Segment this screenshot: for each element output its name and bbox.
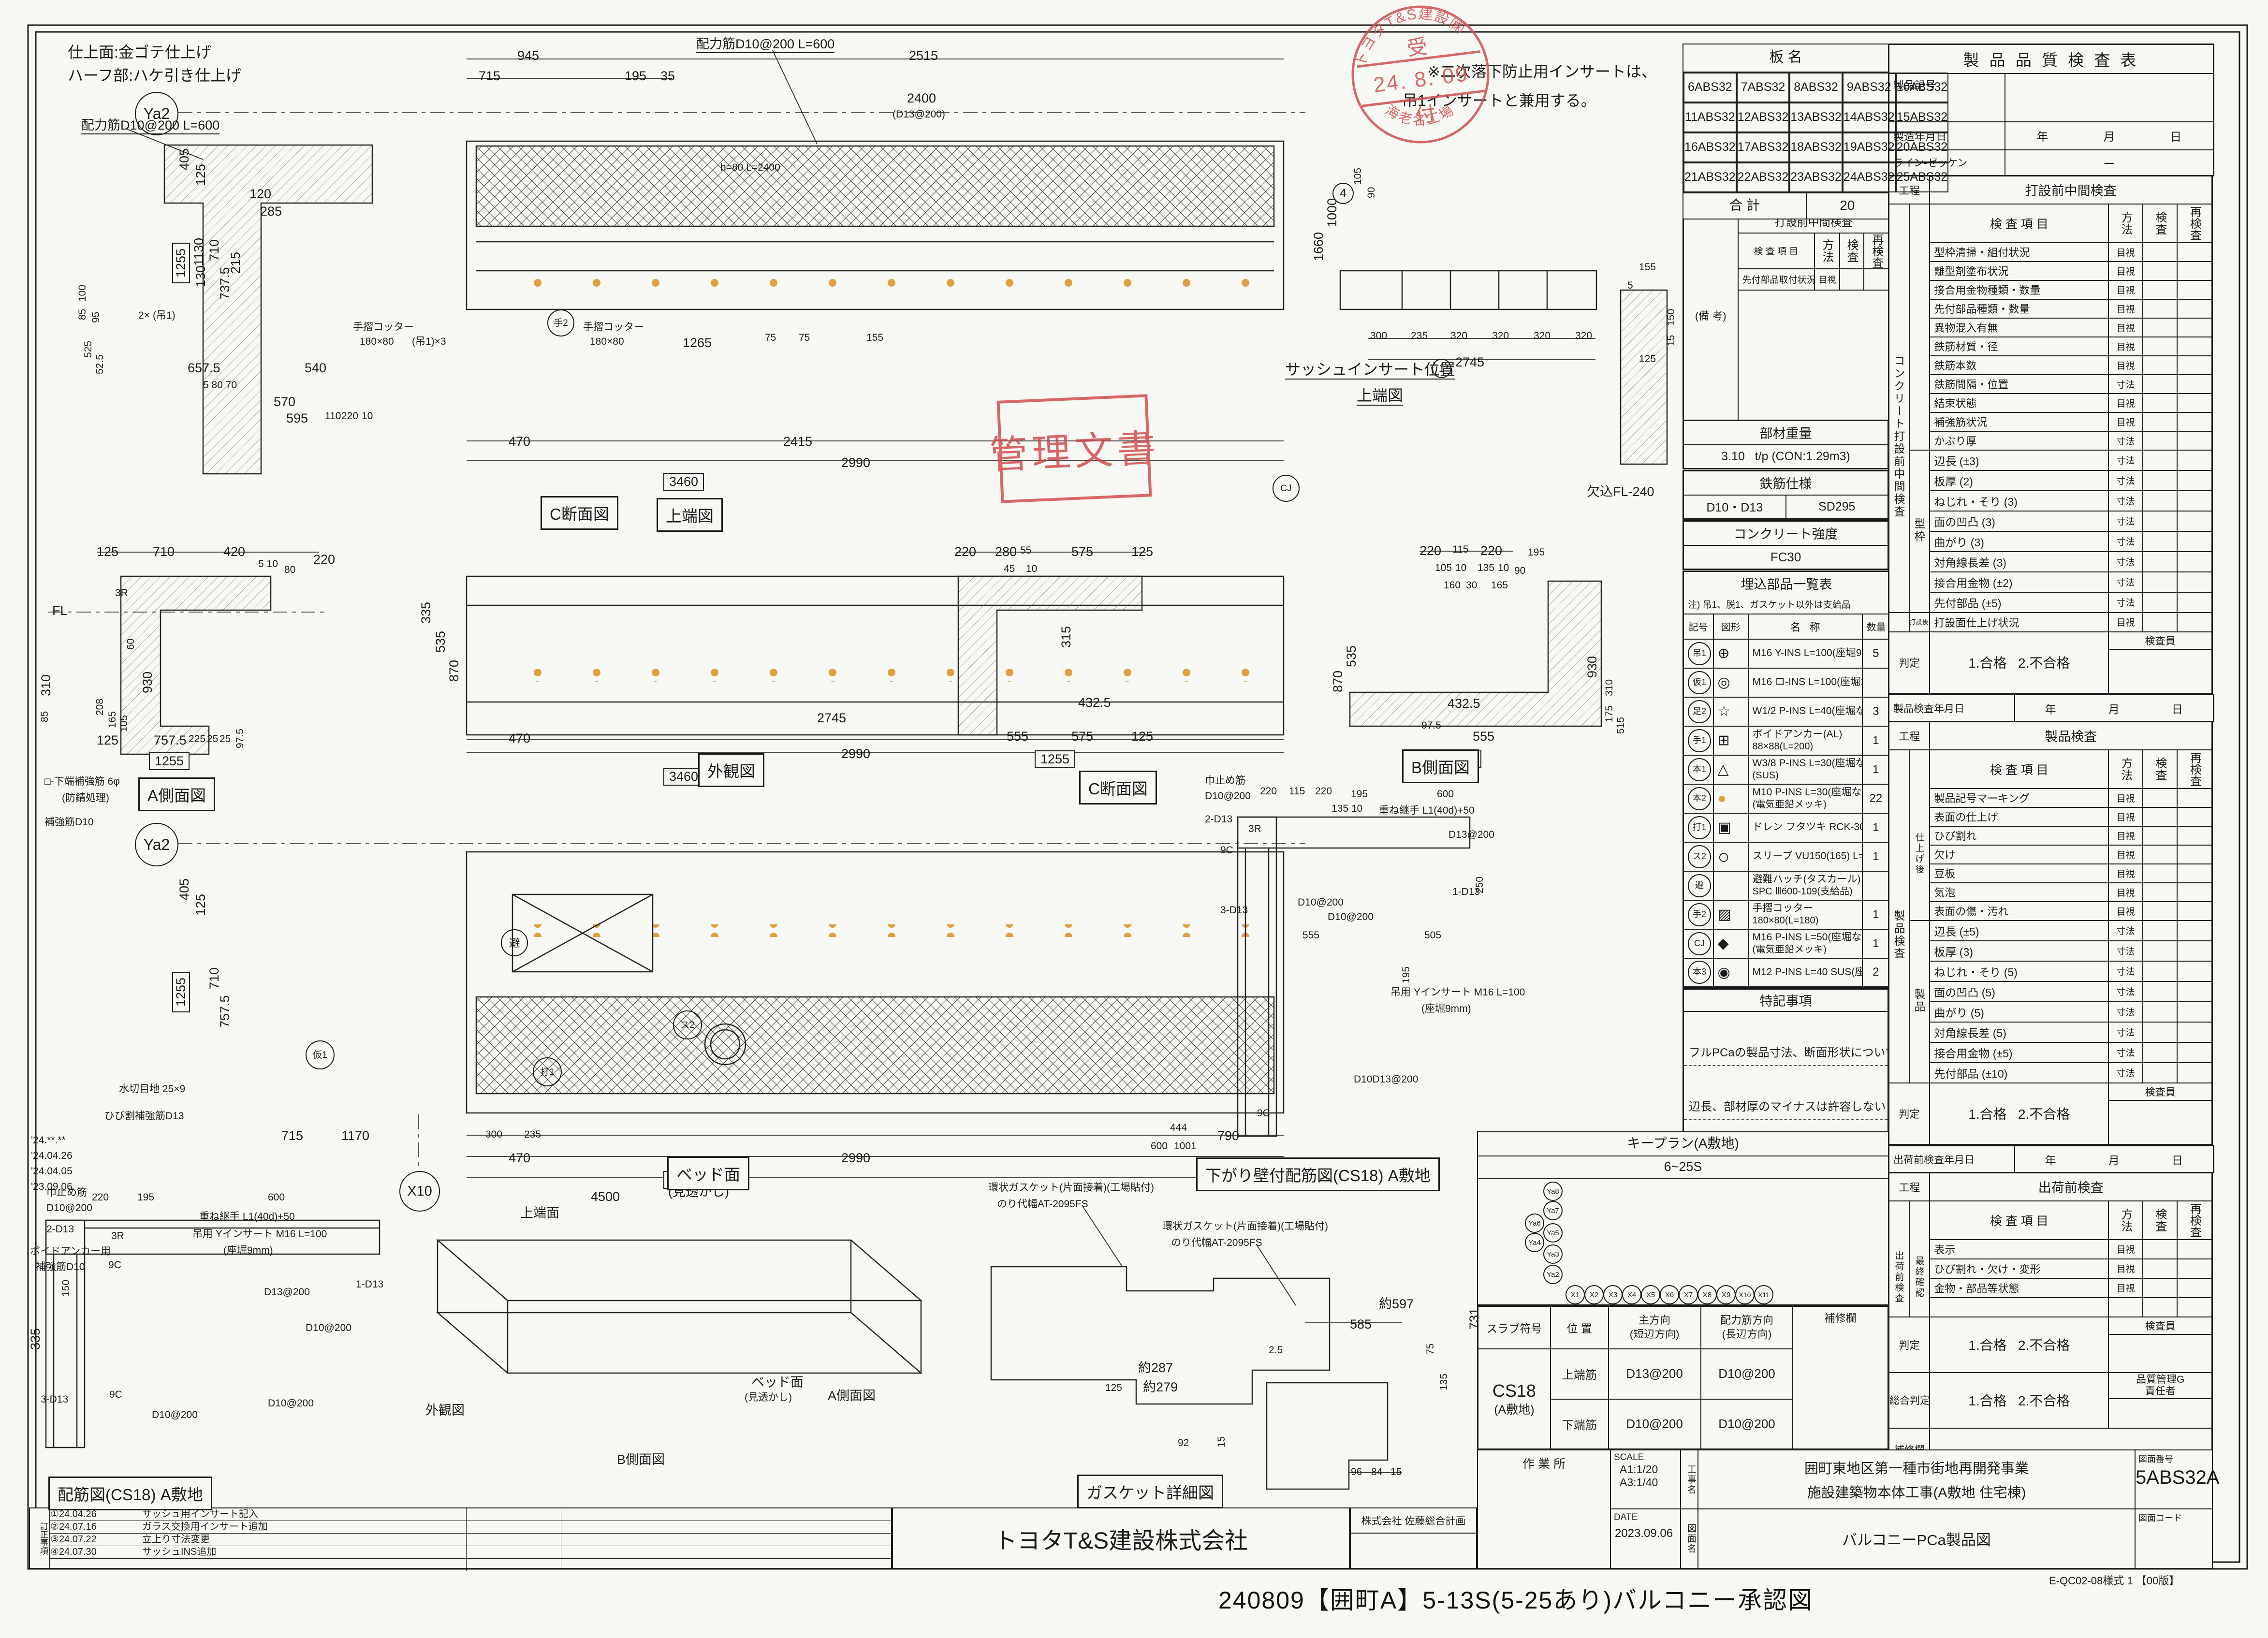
dim-text: 155 xyxy=(1639,262,1656,272)
dim-text: 220 xyxy=(954,545,976,558)
part-symbol: CJ xyxy=(1683,929,1713,958)
h-sym: 記号 xyxy=(1683,614,1713,639)
dim-text: 5 10 xyxy=(258,559,278,569)
dim-text: 555 xyxy=(1473,730,1494,743)
dim-text: 9C xyxy=(109,1389,122,1400)
quality-q2-table: 工程 製品検査 検 査 項 目 方法 検査 再検査 製品記号マーキング目視 表面… xyxy=(1888,721,2213,1145)
dim-text: 300 xyxy=(1370,331,1387,341)
part-qty: 1 xyxy=(1862,929,1890,958)
q3-side-final: 最終確認 xyxy=(1909,1239,1929,1316)
site-office-cell: 作 業 所 xyxy=(1477,1449,1611,1569)
panel-name-cell: 6ABS32 xyxy=(1683,73,1737,102)
grid-bubble: X10 xyxy=(1735,1285,1755,1304)
dim-text: 2-D13 xyxy=(1205,814,1232,824)
scale-cell: SCALE A1:1/20 A3:1/40 xyxy=(1610,1449,1681,1509)
dim-text: 444 xyxy=(1170,1123,1187,1133)
dim-text: 1001 xyxy=(1174,1141,1197,1151)
dim-text: 吊用 Yインサート M16 L=100 xyxy=(192,1229,327,1239)
contractor-name: トヨタT&S建設株式会社 xyxy=(994,1521,1248,1555)
dim-text: 195 xyxy=(137,1192,154,1202)
slab-r1-dist: D10@200 xyxy=(1701,1349,1793,1399)
part-qty: 22 xyxy=(1862,784,1890,813)
dim-text: '24.04.05 xyxy=(31,1166,73,1176)
panel-name-cell: 13ABS32 xyxy=(1789,102,1843,132)
dim-text: 220 xyxy=(1315,786,1332,796)
dim-text: 515 xyxy=(1616,717,1626,734)
rebar-title: 鉄筋仕様 xyxy=(1683,471,1888,495)
dim-text: 215 xyxy=(229,252,242,274)
view-label: C断面図 xyxy=(1079,771,1157,804)
part-icon: ⊞ xyxy=(1713,726,1748,755)
part-symbol: 手2 xyxy=(1683,900,1713,929)
rebar-size: D10・D13 xyxy=(1683,495,1786,519)
dim-text: 手摺コッター xyxy=(583,322,644,332)
panel-name-cell: 18ABS32 xyxy=(1789,132,1843,162)
panel-title: 板 名 xyxy=(1683,44,1888,73)
part-icon: ◆ xyxy=(1713,929,1748,958)
dim-text: 1170 xyxy=(341,1129,369,1142)
q2-side-seihin: 製品 xyxy=(1909,920,1929,1082)
dim-text: ボイドアンカー用 xyxy=(30,1246,111,1257)
part-symbol: 本1 xyxy=(1683,755,1713,784)
project-name-side: 工事名 xyxy=(1680,1449,1698,1509)
dim-text: 125 xyxy=(97,545,118,558)
part-qty xyxy=(1862,871,1890,900)
dim-text: 125 xyxy=(1131,730,1153,743)
grid-bubble: Ya8 xyxy=(1543,1182,1563,1201)
dim-text: 1-D13 xyxy=(356,1279,383,1289)
view-label: B側面図 xyxy=(1402,749,1479,783)
drawing-name-side: 図面名 xyxy=(1680,1508,1698,1569)
dim-text: D10@200 xyxy=(152,1410,198,1420)
q3-verdict: 1.合格 2.不合格 xyxy=(1930,1317,2108,1373)
dim-text: '24.04.26 xyxy=(31,1151,73,1161)
dim-text: 補強筋D10 xyxy=(36,1262,85,1272)
dim-text: 1265 xyxy=(683,336,712,350)
dim-text: 710 xyxy=(208,239,221,261)
dim-text: 657.5 xyxy=(188,362,220,375)
dim-text: 135 10 xyxy=(1332,804,1362,814)
dim-text: 1130 xyxy=(192,238,205,266)
dim-text: 5 xyxy=(1627,280,1633,291)
dim-text: 15 xyxy=(1666,335,1676,346)
dim-text: 約287 xyxy=(1138,1361,1173,1375)
dim-text: h=80 L=2400 xyxy=(720,162,780,173)
dim-text: 75 xyxy=(765,333,776,343)
view-label: C断面図 xyxy=(541,496,618,530)
dim-text: 52.5 xyxy=(95,354,105,374)
dim-text: 195 xyxy=(625,70,646,83)
contractor-cell: トヨタT&S建設株式会社 xyxy=(892,1507,1350,1569)
part-symbol: 足2 xyxy=(1683,697,1713,726)
dim-text: 1255 xyxy=(1035,750,1075,768)
dim-text: 2990 xyxy=(841,456,870,469)
dim-text: 710 xyxy=(208,967,221,989)
part-symbol: 仮1 xyxy=(1683,668,1713,697)
conc-title: コンクリート強度 xyxy=(1683,521,1888,545)
dim-text: 310 xyxy=(40,674,53,696)
dim-text: 315 xyxy=(1060,626,1073,648)
dim-text: 535 xyxy=(1345,645,1358,667)
part-name: M12 P-INS L=40 SUS(座堀なし) xyxy=(1748,958,1862,987)
panel-name-cell: 19ABS32 xyxy=(1843,132,1896,162)
dim-text: 535 xyxy=(434,631,447,653)
dim-text: 2× xyxy=(138,310,150,321)
dim-text: (座堀9mm) xyxy=(1421,1004,1471,1014)
col-insp: 検査 xyxy=(1840,233,1864,269)
remark-label: (備 考) xyxy=(1683,209,1738,422)
grid-bubble: CJ xyxy=(1273,475,1300,502)
scale-a1: A1:1/20 xyxy=(1611,1463,1680,1476)
q2-name: 製品検査 xyxy=(1930,722,2212,750)
concrete-strength: コンクリート強度 FC30 xyxy=(1683,520,1889,570)
panel-name-cell: 9ABS32 xyxy=(1843,73,1896,102)
q1-verdict-label: 判定 xyxy=(1889,632,1930,694)
dim-text: 470 xyxy=(509,1152,530,1165)
slab-r1-main: D13@200 xyxy=(1609,1349,1701,1399)
dim-text: 930 xyxy=(141,672,154,693)
slab-r1-pos: 上端筋 xyxy=(1551,1349,1609,1399)
project-line2: 施設建築物本体工事(A敷地 住宅棟) xyxy=(1698,1477,2135,1502)
part-qty: 3 xyxy=(1862,697,1890,726)
col-item: 検 査 項 目 xyxy=(1738,233,1814,269)
dim-text: 405 xyxy=(178,878,191,900)
dim-text: 525 xyxy=(83,341,93,358)
dim-text: 90 xyxy=(1366,187,1376,198)
view-label: A側面図 xyxy=(138,777,215,811)
scale-label: SCALE xyxy=(1611,1450,1680,1463)
dim-text: 600 xyxy=(268,1192,285,1202)
h-qty: 数量 xyxy=(1862,614,1890,639)
dim-text: 2990 xyxy=(841,747,870,760)
part-name: W1/2 P-INS L=40(座堀なし) xyxy=(1748,697,1862,726)
member-weight: 部材重量 3.10 t/p (CON:1.29m3) xyxy=(1683,420,1889,469)
grid-bubble: X10 xyxy=(399,1171,440,1212)
quality-q3-date: 出荷前検査年月日 年月日 xyxy=(1888,1145,2214,1173)
dim-text: (吊1) xyxy=(153,310,176,321)
dim-text: D10@200 xyxy=(306,1323,351,1333)
slab-rebar-table: スラブ符号 位 置 主方向(短辺方向) 配力筋方向(長辺方向) 補修欄 CS18… xyxy=(1477,1305,1889,1450)
parts-note: 注) 吊1、脱1、ガスケット以外は支給品 xyxy=(1683,595,1890,614)
dim-text: '24.**.** xyxy=(31,1135,66,1145)
part-qty: 1 xyxy=(1862,842,1890,871)
h-name: 名 称 xyxy=(1748,614,1862,639)
dim-text: 420 xyxy=(223,545,245,558)
part-name: 避難ハッチ(タスカール)SPC Ⅲ600-109(支給品) xyxy=(1748,871,1862,900)
quality-q2-date: 製品検査年月日 年月日 xyxy=(1888,694,2214,722)
dim-text: 870 xyxy=(448,660,461,682)
panel-name-cell: 22ABS32 xyxy=(1737,162,1790,192)
q2-date-label: 製品検査年月日 xyxy=(1889,695,2015,722)
dim-text: 235 xyxy=(1411,331,1428,341)
dim-text: 220 xyxy=(341,411,358,421)
scale-a3: A3:1/40 xyxy=(1611,1476,1680,1489)
view-label: ベッド面 xyxy=(667,1156,749,1190)
dim-text: 巾止め筋 xyxy=(1205,775,1245,786)
conc-value: FC30 xyxy=(1683,545,1888,570)
quality-title: 製 品 品 質 検 査 表 xyxy=(1889,44,2214,73)
dim-text: 2.5 xyxy=(1269,1345,1283,1355)
dim-text: 150 xyxy=(1666,309,1676,326)
drawing-no-cell: 図面番号 5ABS32A xyxy=(2135,1449,2213,1509)
stamp-uke: 受 xyxy=(1405,35,1428,60)
q3-side-shipping: 出荷前検査 xyxy=(1889,1239,1908,1316)
dim-text: 600 xyxy=(1437,789,1454,799)
dim-text: 25 xyxy=(219,734,231,744)
dim-text: 手摺コッター xyxy=(353,322,414,332)
dim-text: 90 xyxy=(1514,566,1525,576)
dim-text: 25 xyxy=(207,734,218,744)
dim-text: '23.09.06 xyxy=(31,1182,73,1192)
drawing-code-label: 図面コード xyxy=(2136,1509,2212,1526)
dim-text: 600 xyxy=(1151,1141,1168,1151)
drawing-code-cell: 図面コード xyxy=(2135,1508,2213,1569)
dim-text: 757.5 xyxy=(219,995,232,1028)
part-qty: 1 xyxy=(1862,813,1890,842)
dim-text: D10@200 xyxy=(1205,791,1251,801)
dim-text: 575 xyxy=(1071,730,1093,743)
keyplan-title: キープラン(A敷地) xyxy=(1478,1132,1888,1156)
q1-side-concrete: コンクリート打設前中間検査 xyxy=(1889,242,1908,631)
dim-text: 125 xyxy=(194,164,207,186)
drawing-name-cell: バルコニーPCa製品図 xyxy=(1697,1508,2136,1569)
part-icon: ⊕ xyxy=(1713,639,1748,668)
dim-text: 555 xyxy=(1302,930,1319,940)
dim-text: D13@200 xyxy=(264,1287,310,1297)
part-symbol: 手1 xyxy=(1683,726,1713,755)
dim-text: 2515 xyxy=(909,49,938,62)
dim-text: D10@200 xyxy=(1328,912,1374,922)
dim-text: 405 xyxy=(178,148,191,170)
part-name: M16 P-INS L=50(座堀なし)(電気亜鉛メッキ) xyxy=(1748,929,1862,958)
dim-text: 75 xyxy=(1425,1344,1435,1355)
rebar-spec: 鉄筋仕様 D10・D13 SD295 xyxy=(1683,470,1889,520)
dim-text: 上端図 xyxy=(1357,388,1403,406)
drawing-title: バルコニーPCa製品図 xyxy=(1842,1528,1991,1550)
panel-name-cell: 24ABS32 xyxy=(1843,162,1896,192)
dim-text: 320 xyxy=(1492,331,1509,341)
grid-bubble: Ya2 xyxy=(135,823,178,866)
date-label: DATE xyxy=(1611,1509,1680,1527)
slab-r2-dist: D10@200 xyxy=(1701,1399,1793,1449)
panel-name-cell: 14ABS32 xyxy=(1843,102,1896,132)
dim-text: 300 xyxy=(485,1129,502,1140)
dim-text: 3460 xyxy=(663,473,704,491)
dim-text: 310 xyxy=(1604,679,1614,696)
keyplan-range: 6~25S xyxy=(1478,1156,1888,1179)
grid-bubble: Ya4 xyxy=(1525,1233,1544,1252)
dim-text: 225 xyxy=(189,734,205,744)
q1-side-form: 型枠 xyxy=(1909,449,1929,612)
dim-text: 4500 xyxy=(591,1190,620,1203)
dim-text: 335 xyxy=(420,602,433,624)
dim-text: 約279 xyxy=(1143,1381,1178,1394)
grid-bubble: 1 xyxy=(1432,359,1451,378)
grid-bubble: 手2 xyxy=(547,309,574,336)
dim-text: 320 xyxy=(1450,331,1467,341)
drawing-no-label: 図面番号 xyxy=(2136,1450,2212,1467)
dim-text: 85 xyxy=(40,711,50,722)
dim-text: 1255 xyxy=(172,972,190,1012)
dim-text: 195 xyxy=(1528,547,1545,557)
dim-text: 575 xyxy=(1071,545,1093,558)
dim-text: 715 xyxy=(281,1129,303,1142)
grid-bubble: X9 xyxy=(1716,1285,1736,1304)
dim-text: 125 xyxy=(1105,1383,1122,1393)
dim-text: 160 xyxy=(1444,580,1461,590)
dim-text: 2415 xyxy=(783,435,812,448)
date-value: 2023.09.06 xyxy=(1611,1527,1680,1540)
dim-text: 92 xyxy=(1178,1438,1189,1448)
dim-text: 10 xyxy=(1498,563,1509,573)
view-label: 配筋図(CS18) A敷地 xyxy=(48,1477,212,1510)
grid-bubble: X7 xyxy=(1679,1285,1698,1304)
dim-text: 97.5 xyxy=(235,729,245,748)
h-fig: 図形 xyxy=(1713,614,1748,639)
dim-text: 1255 xyxy=(172,243,190,283)
dim-text: 470 xyxy=(509,732,530,745)
dim-text: 731 xyxy=(1468,1308,1481,1330)
dim-text: 2990 xyxy=(841,1152,870,1165)
dim-text: 470 xyxy=(509,435,530,448)
final-verdict-label: 総合判定 xyxy=(1889,1373,1930,1428)
dim-text: ベッド面 xyxy=(751,1376,804,1389)
dim-text: 96 xyxy=(1351,1467,1362,1477)
dim-text: 45 xyxy=(1004,564,1015,574)
part-qty xyxy=(1862,668,1890,697)
dim-text: 165 xyxy=(1491,580,1508,590)
dim-text: 285 xyxy=(260,205,282,218)
dim-text: 10 xyxy=(1026,564,1037,574)
dim-text: 10 xyxy=(362,411,373,421)
dim-text: D10@200 xyxy=(268,1398,314,1408)
dim-text: 220 xyxy=(1260,786,1277,796)
dim-text: のり代幅AT-2095FS xyxy=(997,1199,1088,1209)
dim-text: 195 xyxy=(1401,966,1411,983)
dim-text: 2745 xyxy=(1455,356,1484,369)
slab-h1: スラブ符号 xyxy=(1478,1306,1551,1349)
dim-text: 757.5 xyxy=(154,734,187,747)
dim-text: 220 xyxy=(1419,544,1441,557)
project-name-cell: 囲町東地区第一種市街地再開発事業 施設建築物本体工事(A敷地 住宅棟) xyxy=(1697,1449,2136,1509)
dim-text: 60 xyxy=(126,639,136,650)
mini-item: 先付部品取付状況 xyxy=(1738,269,1814,290)
part-icon: △ xyxy=(1713,755,1748,784)
part-name: 手摺コッター180×80(L=180) xyxy=(1748,900,1862,929)
dim-text: 95 xyxy=(91,312,101,323)
total-label: 合 計 xyxy=(1683,193,1807,219)
dim-text: 540 xyxy=(305,362,326,375)
dim-text: 125 xyxy=(194,894,207,916)
dim-text: 15 xyxy=(1390,1467,1402,1477)
grid-bubble: Ya6 xyxy=(1525,1214,1544,1233)
dim-text: D10@200 xyxy=(1298,897,1344,907)
dim-text: サッシュインサート位置 xyxy=(1285,362,1455,380)
grid-bubble: Ya5 xyxy=(1543,1223,1563,1243)
dim-text: 9C xyxy=(1220,845,1233,855)
part-qty: 5 xyxy=(1862,639,1890,668)
dim-text: 85 xyxy=(77,309,88,320)
site-office-label: 作 業 所 xyxy=(1478,1450,1610,1472)
dim-text: (座堀9mm) xyxy=(223,1245,273,1256)
q1-side-after: 打設後 xyxy=(1909,612,1929,631)
col-method: 方法 xyxy=(1814,233,1840,269)
dim-text: 84 xyxy=(1371,1467,1382,1477)
part-qty: 1 xyxy=(1862,755,1890,784)
part-symbol: ス2 xyxy=(1683,842,1713,871)
approval-title: 240809【囲町A】5-13S(5-25あり)バルコニー承認図 xyxy=(1218,1581,1813,1616)
quality-q1-table: 工程 打設前中間検査 検 査 項 目 方法 検査 再検査 型枠清掃・組付状況目視… xyxy=(1888,175,2213,694)
dim-text: 125 xyxy=(1131,545,1153,558)
receipt-stamp: トヨタT&S建設㈱ 受 24. 8. 09 付 海老名工場 xyxy=(1340,0,1501,155)
panel-name-cell: 23ABS32 xyxy=(1789,162,1843,192)
grid-bubble: X1 xyxy=(1566,1285,1585,1304)
dim-text: ひび割補強筋D13 xyxy=(104,1111,184,1121)
panel-name-cell: 8ABS32 xyxy=(1789,73,1843,102)
dim-text: 3-D13 xyxy=(1220,905,1248,915)
dim-text: 870 xyxy=(1332,671,1345,692)
dim-text: 3R xyxy=(1248,824,1261,834)
part-name: M16 Y-INS L=100(座堀9) xyxy=(1748,639,1862,668)
dim-text: 180×80 xyxy=(590,336,624,347)
tokki-title: 特記事項 xyxy=(1683,989,1888,1011)
grid-bubble: 4 xyxy=(1332,183,1354,204)
part-symbol: 打1 xyxy=(1683,813,1713,842)
document-control-stamp: 管理文書 xyxy=(997,394,1152,503)
grid-bubble: Ya2 xyxy=(135,92,178,135)
dim-text: 155 xyxy=(866,333,883,343)
view-label: 上端図 xyxy=(657,498,723,532)
stamp-date: 24. 8. 09 xyxy=(1372,62,1470,97)
part-qty: 1 xyxy=(1862,726,1890,755)
panel-name-cell: 20ABS32 xyxy=(1896,132,1949,162)
dim-text: 165 xyxy=(107,711,117,728)
grid-bubble: 避 xyxy=(501,929,528,956)
view-label: ガスケット詳細図 xyxy=(1077,1475,1223,1508)
dim-text: 235 xyxy=(524,1129,541,1140)
panel-name-cell: 7ABS32 xyxy=(1737,73,1790,102)
dim-text: FL xyxy=(52,604,68,617)
dim-text: D13@200 xyxy=(1449,830,1494,840)
slab-h2: 位 置 xyxy=(1551,1306,1609,1349)
q3-name: 出荷前検査 xyxy=(1930,1173,2212,1201)
weight-title: 部材重量 xyxy=(1683,421,1888,445)
dim-text: 250 xyxy=(1475,877,1485,893)
dim-text: 930 xyxy=(1586,656,1599,678)
dim-text: 35 xyxy=(660,70,675,83)
dim-text: 120 xyxy=(249,188,271,201)
remark-mini-table: (備 考) 打設前中間検査 検 査 項 目 方法 検査 再検査 先付部品取付状況… xyxy=(1683,208,1890,422)
dim-text: □-下端補強筋 6φ xyxy=(44,776,120,787)
dim-text: 1000 xyxy=(1326,198,1339,227)
revision-row: ④24.07.30 サッシュINS追加 xyxy=(50,1546,891,1559)
slab-h3: 主方向(短辺方向) xyxy=(1609,1306,1701,1349)
weight-value: 3.10 t/p (CON:1.29m3) xyxy=(1683,445,1888,469)
grid-bubble: X11 xyxy=(1754,1285,1773,1304)
part-symbol: 吊1 xyxy=(1683,639,1713,668)
embedded-parts-table: 埋込部品一覧表 注) 吊1、脱1、ガスケット以外は支給品 記号 図形 名 称 数… xyxy=(1683,570,1890,988)
dim-text: 105 xyxy=(1353,168,1363,185)
slab-h5: 補修欄 xyxy=(1793,1306,1888,1449)
q1-verdict: 1.合格 2.不合格 xyxy=(1930,632,2108,694)
dim-text: 水切目地 25×9 xyxy=(119,1084,185,1094)
part-name: ドレン フタツキ RCK-3075 xyxy=(1748,813,1862,842)
dim-text: 80 xyxy=(284,565,295,575)
q2-side-product: 製品検査 xyxy=(1889,788,1908,1082)
dim-text: D10D13@200 xyxy=(1354,1074,1418,1084)
project-line1: 囲町東地区第一種市街地再開発事業 xyxy=(1698,1450,2135,1477)
dim-text: 115 xyxy=(1452,544,1468,555)
